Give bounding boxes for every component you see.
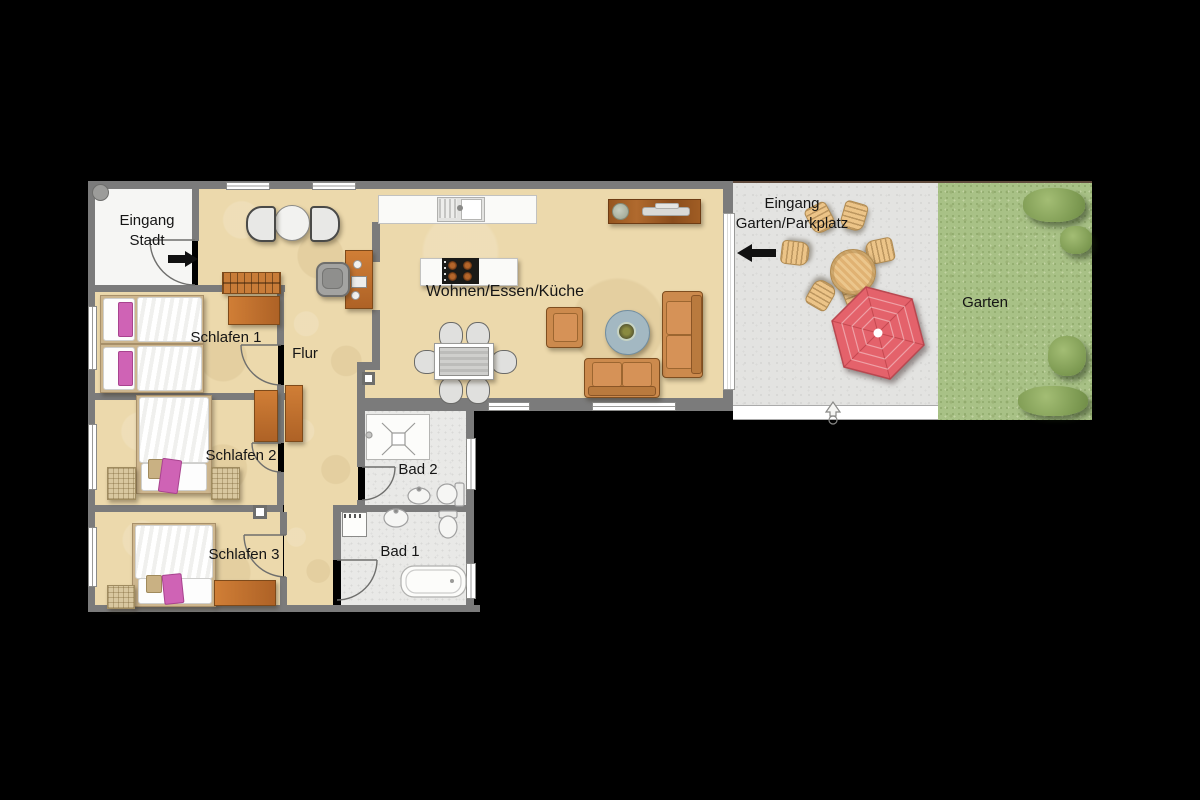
nightstand-s2-left: [107, 467, 136, 500]
dining-table-runner: [439, 347, 489, 376]
wall-s2-right-b: [277, 472, 284, 505]
bush-3: [1048, 336, 1086, 376]
bush-1: [1023, 188, 1085, 222]
loveseat-cushion-2: [622, 362, 652, 387]
window-living-south-1: [488, 402, 530, 411]
wall-s3-right-b: [280, 577, 287, 605]
window-schlafen2: [88, 424, 97, 490]
bed-double-s3-cushion: [146, 575, 162, 593]
window-bad1: [466, 563, 476, 599]
coat-rack: [222, 272, 281, 294]
bush-4: [1018, 386, 1088, 416]
wall-entry-right: [192, 181, 199, 241]
floor-plan: Eingang Stadt Flur Schlafen 1 Schlafen 2…: [0, 0, 1200, 800]
sink-basin: [461, 199, 482, 220]
bed-single-2-duvet: [137, 346, 202, 391]
coffee-table-decor: [619, 324, 634, 339]
wall-living-right-top: [723, 181, 733, 213]
room-flur-lower: [284, 508, 333, 605]
loveseat-cushion-1: [592, 362, 622, 387]
hall-chair-right: [310, 206, 340, 242]
entry-city-arrow-bar: [168, 255, 185, 263]
wall-flur-corner: [357, 362, 380, 370]
window-hall-1: [226, 182, 270, 190]
flur-wardrobe: [285, 385, 303, 442]
wardrobe-s2: [254, 390, 278, 442]
bed-double-s3-duvet: [135, 525, 213, 579]
kitchen-faucet: [457, 205, 463, 211]
wall-corridor-bad1: [333, 505, 341, 560]
desk-item-2: [351, 291, 360, 300]
wardrobe-s3: [214, 580, 276, 606]
shower: [366, 414, 430, 460]
window-living-south-2: [592, 402, 676, 411]
terrace-glass-door: [723, 213, 735, 390]
burner-3: [448, 272, 457, 281]
desk-item-1: [353, 260, 362, 269]
window-hall-2: [312, 182, 356, 190]
burner-2: [463, 261, 472, 270]
bed-double-s3-accent: [161, 573, 184, 605]
window-schlafen1: [88, 306, 97, 370]
hall-round-table: [274, 205, 310, 241]
hall-chair-left: [246, 206, 276, 242]
label-eingang-stadt: Eingang Stadt: [119, 211, 174, 251]
cooktop: [442, 258, 479, 284]
schlafen1-dresser: [228, 296, 280, 325]
sofa-right-back: [691, 295, 702, 374]
label-schlafen-1: Schlafen 1: [191, 328, 262, 348]
wall-s2-right-a: [277, 400, 284, 443]
terrace-chair-3: [780, 239, 811, 266]
sideboard-plant: [612, 203, 629, 220]
label-wohnen: Wohnen/Essen/Küche: [426, 282, 584, 302]
dining-chair-3: [439, 377, 463, 404]
label-eingang-garten: Eingang Garten/Parkplatz: [736, 194, 849, 234]
bed-double-s2-duvet: [139, 397, 209, 463]
burner-4: [463, 272, 472, 281]
wall-living-bottom: [357, 398, 733, 411]
window-bad2: [466, 438, 476, 490]
shaft-marker-2: [362, 372, 375, 385]
terrace-arrow-bar: [752, 249, 776, 257]
terrace-arrow-icon: [737, 244, 752, 262]
window-schlafen3: [88, 527, 97, 587]
label-bad-1: Bad 1: [380, 542, 419, 562]
armchair-cushion: [553, 313, 578, 342]
sink-draining-board: [439, 199, 457, 218]
wall-flur-living: [372, 310, 380, 367]
bed-single-2-accent: [118, 351, 133, 386]
sofa-right-cushion-1: [666, 301, 693, 335]
loveseat-back: [588, 386, 656, 396]
wall-s3-right-a: [280, 512, 287, 535]
wall-kitchen-stub: [372, 222, 380, 262]
label-garten: Garten: [962, 293, 1008, 313]
label-flur: Flur: [292, 344, 318, 364]
dining-chair-4: [466, 377, 490, 404]
bed-single-1-accent: [118, 302, 133, 337]
terrace-edge-strip: [733, 405, 938, 420]
washing-machine-panel: [344, 514, 363, 518]
wall-s1-right-b: [277, 385, 284, 393]
wall-top: [88, 181, 733, 189]
sideboard-item: [655, 203, 679, 209]
nightstand-s3: [107, 585, 135, 609]
burner-1: [448, 261, 457, 270]
nightstand-s2-right: [211, 467, 240, 500]
entry-city-arrow-icon: [185, 251, 198, 267]
label-schlafen-2: Schlafen 2: [206, 446, 277, 466]
bush-2: [1060, 226, 1092, 254]
dining-chair-6: [491, 350, 517, 374]
wall-bad2-left-b: [357, 500, 365, 508]
sofa-right-cushion-2: [666, 335, 693, 369]
wall-living-right-bottom: [723, 388, 733, 408]
entry-column: [92, 184, 109, 201]
label-schlafen-3: Schlafen 3: [209, 545, 280, 565]
terrace-table: [830, 249, 876, 295]
desk-laptop: [351, 276, 367, 288]
label-bad-2: Bad 2: [398, 460, 437, 480]
shaft-marker-1: [253, 505, 267, 519]
office-chair-seat: [322, 268, 343, 289]
cooktop-knobs: [444, 261, 446, 281]
